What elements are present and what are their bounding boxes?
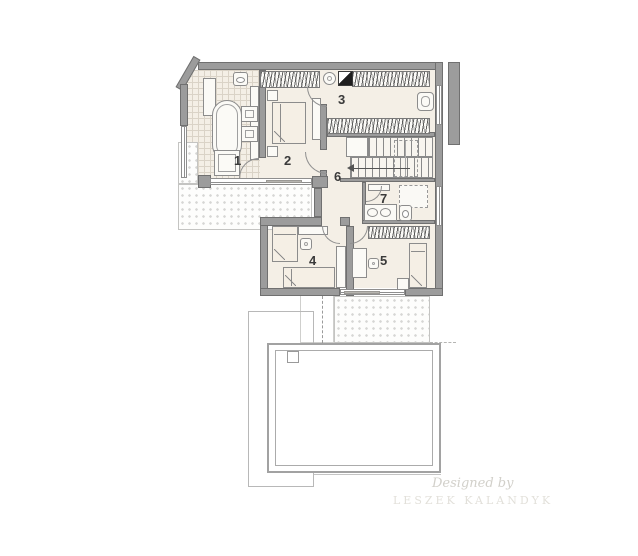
washbasin-room7-a (367, 208, 378, 217)
terrace (334, 296, 430, 343)
wall-stairs-room7 (340, 178, 435, 182)
double-bed-room2 (272, 102, 306, 144)
washbasin-room7-b (380, 208, 391, 217)
stair-direction-arrow-icon (347, 164, 354, 172)
room-label-5: 5 (380, 253, 387, 268)
nightstand-room2-b (267, 146, 278, 157)
watermark-designed-by: Designed by (432, 476, 513, 491)
fireplace-flue-icon (338, 71, 353, 86)
washbasin-counter (250, 86, 259, 160)
room-label-7: 7 (380, 191, 387, 206)
stair-walk-line-box (394, 140, 418, 177)
chair-room4 (300, 238, 312, 250)
detached-wall-segment (448, 62, 460, 145)
wall-room2-hall-upper (320, 104, 327, 150)
window-sill-room5 (344, 291, 380, 294)
terrace-divider-dashed-line (322, 296, 323, 343)
stair-direction-line (354, 168, 410, 169)
room-label-6: 6 (334, 169, 341, 184)
wall-rooms45-top-a (260, 217, 322, 226)
exterior-wall-left (180, 84, 188, 126)
toilet-room7 (399, 205, 412, 221)
washing-machine-icon (323, 72, 336, 85)
washbasin-1 (241, 106, 258, 122)
wall-junction-room2 (312, 176, 328, 188)
toilet-room1 (233, 72, 248, 86)
wardrobe-rail-room2 (260, 71, 320, 88)
nightstand-room5 (397, 278, 409, 290)
wardrobe-room4 (336, 246, 346, 288)
room-label-2: 2 (284, 153, 291, 168)
window-left-bathroom (181, 126, 187, 178)
washbasin-2 (241, 126, 258, 142)
eaves-line (314, 474, 441, 475)
room-label-3: 3 (338, 92, 345, 107)
floor-plan-canvas: 1 2 3 4 5 6 7 Designed by LESZEK KALANDY… (0, 0, 638, 556)
room-label-4: 4 (309, 253, 316, 268)
watermark-designer-name: LESZEK KALANDYK (393, 494, 553, 507)
armchair-room3 (417, 92, 434, 111)
nightstand-room2-a (267, 90, 278, 101)
exterior-wall-bottom-b (405, 288, 443, 296)
wardrobe-rail-room3-top (352, 71, 430, 87)
exterior-wall-bottom-a (260, 288, 340, 296)
wall-rooms45-top-b (340, 217, 350, 226)
stair-walk-line (405, 141, 406, 176)
window-sill-room2 (266, 180, 302, 183)
lower-roof (275, 350, 433, 466)
stair-landing (346, 137, 368, 157)
single-bed-room4-b (283, 267, 335, 288)
window-right-room3 (436, 85, 442, 125)
single-bed-room4-a (272, 226, 298, 262)
wardrobe-rail-room5 (368, 226, 430, 239)
chimney (287, 351, 299, 363)
chair-room5 (368, 258, 379, 269)
wall-vestibule-left (314, 188, 322, 217)
desk-room5 (352, 248, 367, 278)
wall-rooms45-left (260, 217, 268, 296)
exterior-wall-top (198, 62, 443, 70)
wardrobe-rail-room3-bottom (327, 118, 430, 134)
window-right-room7 (436, 186, 442, 226)
room-label-1: 1 (234, 153, 241, 168)
single-bed-room5 (409, 243, 427, 288)
